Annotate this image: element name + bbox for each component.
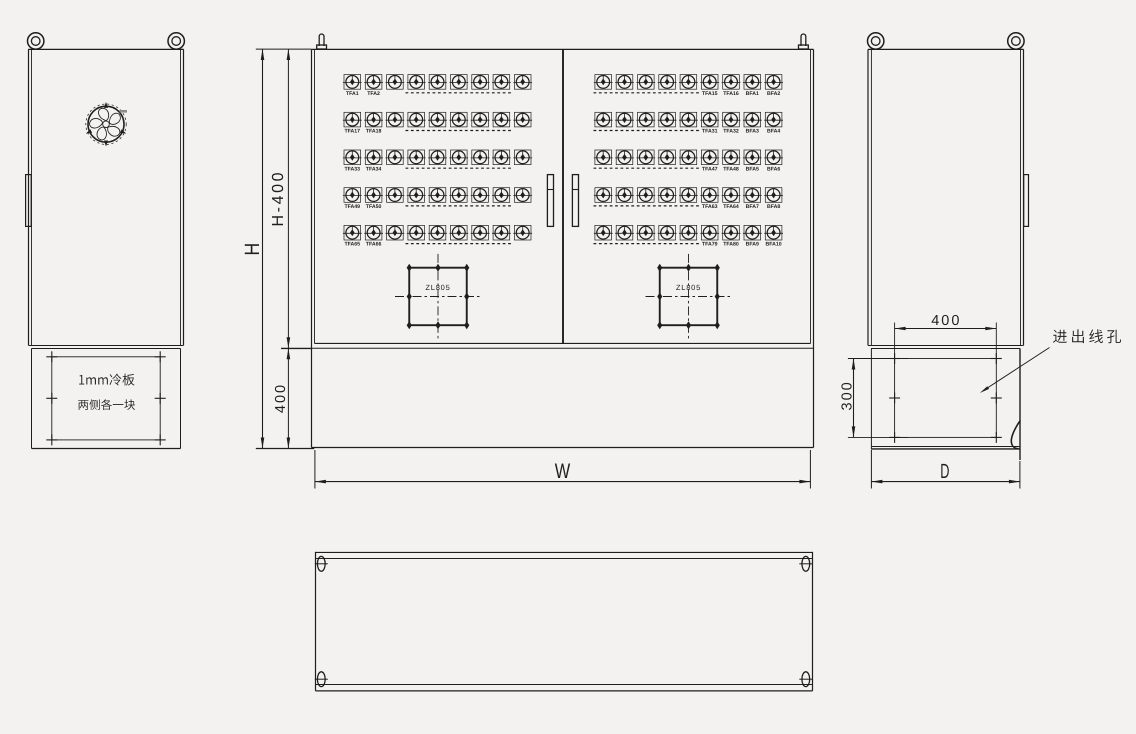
- svg-text:TFA65: TFA65: [345, 242, 361, 248]
- svg-text:BFA7: BFA7: [746, 204, 759, 210]
- svg-text:BFA10: BFA10: [766, 242, 782, 248]
- svg-text:TFA63: TFA63: [702, 204, 718, 210]
- svg-text:TFA18: TFA18: [366, 129, 382, 135]
- svg-text:BFA9: BFA9: [746, 242, 759, 248]
- svg-text:TFA17: TFA17: [345, 129, 361, 135]
- svg-text:TFA1: TFA1: [346, 91, 359, 97]
- svg-text:TFA49: TFA49: [345, 204, 361, 210]
- svg-text:W: W: [555, 460, 571, 483]
- svg-text:H: H: [241, 243, 264, 256]
- svg-text:TFA16: TFA16: [723, 91, 739, 97]
- svg-text:BFA4: BFA4: [767, 129, 780, 135]
- svg-text:TFA15: TFA15: [702, 91, 718, 97]
- svg-text:ZL805: ZL805: [425, 283, 450, 292]
- svg-text:H-400: H-400: [270, 170, 287, 227]
- svg-text:D: D: [940, 460, 949, 483]
- svg-text:TFA34: TFA34: [366, 166, 382, 172]
- svg-text:TFA64: TFA64: [723, 204, 739, 210]
- svg-text:BFA2: BFA2: [767, 91, 780, 97]
- svg-text:TFA66: TFA66: [366, 242, 382, 248]
- svg-text:TFA48: TFA48: [723, 166, 739, 172]
- svg-text:TFA2: TFA2: [367, 91, 380, 97]
- svg-text:ZL805: ZL805: [676, 283, 701, 292]
- svg-text:TFA80: TFA80: [723, 242, 739, 248]
- svg-text:400: 400: [273, 383, 289, 413]
- svg-text:TFA50: TFA50: [366, 204, 382, 210]
- svg-text:BFA3: BFA3: [746, 129, 759, 135]
- svg-text:400: 400: [931, 313, 961, 329]
- svg-text:BFA5: BFA5: [746, 166, 759, 172]
- svg-text:TFA31: TFA31: [702, 129, 718, 135]
- svg-text:TFA47: TFA47: [702, 166, 718, 172]
- svg-text:300: 300: [839, 380, 855, 410]
- svg-text:BFA1: BFA1: [746, 91, 759, 97]
- svg-text:TFA32: TFA32: [723, 129, 739, 135]
- svg-text:TFA79: TFA79: [702, 242, 718, 248]
- svg-text:BFA8: BFA8: [767, 204, 780, 210]
- svg-text:TFA33: TFA33: [345, 166, 361, 172]
- svg-text:BFA6: BFA6: [767, 166, 780, 172]
